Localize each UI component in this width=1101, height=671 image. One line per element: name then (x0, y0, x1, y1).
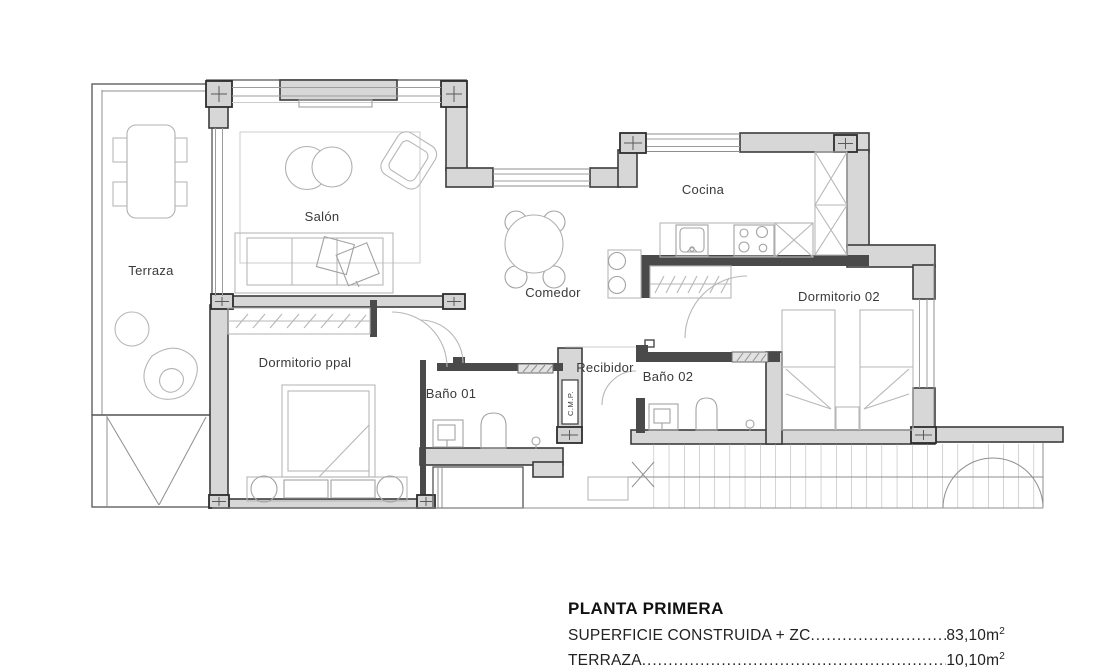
area-row-terrace: TERRAZA.................................… (568, 646, 1005, 671)
room-label-recibidor: Recibidor (576, 360, 634, 375)
area-row-built: SUPERFICIE CONSTRUIDA + ZC..............… (568, 621, 1005, 646)
toilet (696, 398, 717, 430)
pillar (441, 81, 467, 107)
pillar (417, 495, 435, 508)
washbasin (433, 420, 463, 447)
counter-cabinet (775, 223, 813, 257)
dot-leader: ........................................… (642, 650, 947, 671)
room-label-cocina: Cocina (682, 182, 725, 197)
stove (734, 225, 774, 256)
room-label-bano-01: Baño 01 (426, 386, 477, 401)
room-label-salon: Salón (305, 209, 340, 224)
tv (299, 100, 372, 107)
dining-set (505, 211, 565, 288)
plan-title: PLANTA PRIMERA (568, 599, 1005, 619)
floor-plan-page: C.M.P. Terraza Salón Cocina Comedor Dorm… (0, 0, 1101, 671)
bathroom-window (518, 364, 553, 373)
room-label-dormitorio-ppal: Dormitorio ppal (259, 355, 352, 370)
master-bedroom (228, 308, 407, 502)
pillar (209, 495, 229, 508)
terrace (92, 84, 212, 507)
wardrobe (228, 308, 370, 334)
floor-plan-drawing: C.M.P. Terraza Salón Cocina Comedor Dorm… (0, 0, 1101, 671)
pillar (911, 427, 936, 443)
pillar (211, 294, 233, 309)
kitchen-sink (676, 225, 708, 256)
kitchen-peninsula (608, 250, 641, 298)
pillar (557, 427, 582, 443)
bathroom-02 (649, 398, 754, 431)
area-label: TERRAZA (568, 650, 642, 671)
room-label-comedor: Comedor (525, 285, 581, 300)
room-label-dormitorio-02: Dormitorio 02 (798, 289, 880, 304)
title-block: PLANTA PRIMERA SUPERFICIE CONSTRUIDA + Z… (568, 599, 1005, 671)
pillar (206, 81, 232, 107)
side-table (286, 147, 353, 190)
bathroom-window (732, 352, 768, 362)
nightstand (836, 407, 859, 430)
room-label-terraza: Terraza (128, 263, 174, 278)
room-label-bano-02: Baño 02 (643, 369, 694, 384)
tall-cabinets (815, 152, 847, 255)
single-bed (782, 310, 835, 430)
bed-bench (247, 476, 407, 502)
dot-leader: ........................................… (810, 625, 946, 646)
lightwell (433, 467, 523, 508)
pillar (443, 294, 465, 309)
terrace-lower-court (92, 415, 212, 507)
area-value: 83,10m2 (946, 621, 1005, 646)
terrace-plant (115, 312, 197, 399)
pillar (834, 135, 857, 152)
armchair (377, 128, 440, 193)
washbasin (649, 404, 678, 430)
toilet (481, 413, 506, 448)
service-shaft: C.M.P. (562, 380, 578, 424)
single-bed (860, 310, 913, 430)
shaft-label: C.M.P. (566, 391, 575, 416)
double-bed (282, 385, 375, 477)
living-room (235, 100, 440, 293)
pillar (620, 133, 646, 153)
terrace-table (113, 125, 187, 218)
area-label: SUPERFICIE CONSTRUIDA + ZC (568, 625, 810, 646)
area-value: 10,10m2 (946, 646, 1005, 671)
